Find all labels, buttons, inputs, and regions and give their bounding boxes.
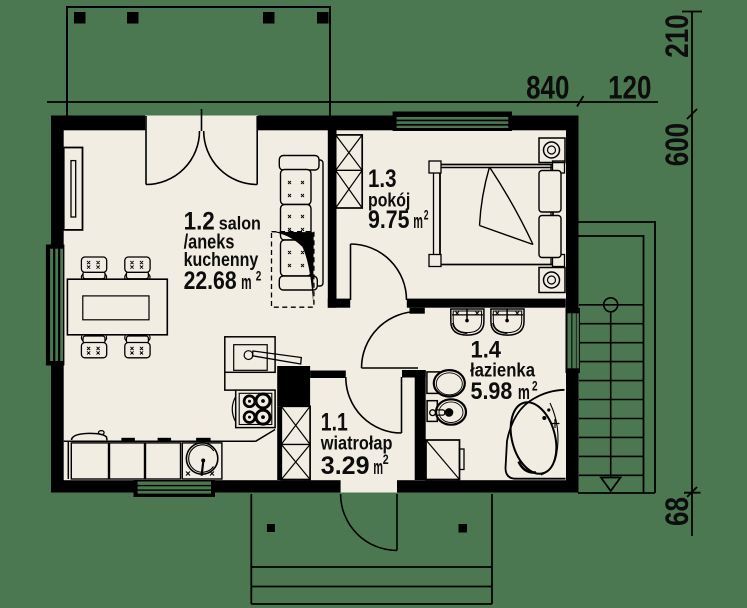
svg-text:9.75: 9.75 xyxy=(368,206,410,234)
svg-text:2: 2 xyxy=(383,452,389,467)
svg-text:2: 2 xyxy=(256,268,262,283)
svg-text:m: m xyxy=(241,271,252,294)
svg-text:m: m xyxy=(518,381,530,404)
svg-text:22.68: 22.68 xyxy=(184,267,237,295)
svg-text:m: m xyxy=(373,456,383,479)
svg-text:210: 210 xyxy=(659,14,695,57)
svg-text:1.1: 1.1 xyxy=(321,409,348,437)
svg-text:600: 600 xyxy=(659,123,695,166)
svg-text:2: 2 xyxy=(424,208,429,223)
svg-text:68: 68 xyxy=(659,497,695,526)
svg-text:5.98: 5.98 xyxy=(471,378,513,405)
svg-text:840: 840 xyxy=(526,70,569,106)
svg-text:3.29: 3.29 xyxy=(321,452,370,480)
svg-text:m: m xyxy=(413,210,423,233)
svg-text:2: 2 xyxy=(532,379,538,394)
svg-text:120: 120 xyxy=(608,70,651,106)
svg-text:1.3: 1.3 xyxy=(368,165,397,193)
